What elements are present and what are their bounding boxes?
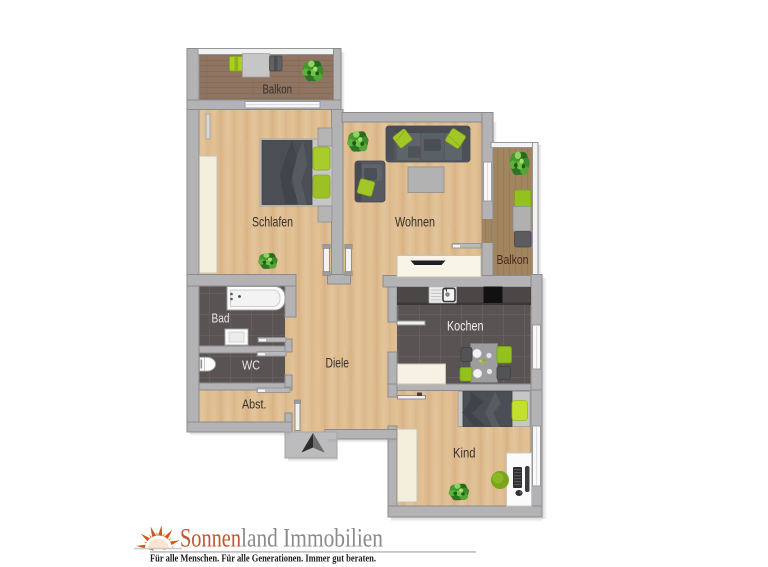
svg-text:Wohnen: Wohnen [395,215,435,230]
svg-text:Schlafen: Schlafen [252,215,293,230]
svg-text:WC: WC [242,359,260,373]
svg-text:Für alle Menschen. Für alle Ge: Für alle Menschen. Für alle Generationen… [150,553,376,565]
svg-text:Kind: Kind [453,446,476,461]
svg-text:land Immobilien: land Immobilien [241,524,383,553]
svg-text:Diele: Diele [326,356,350,371]
svg-text:Bad: Bad [212,312,230,326]
svg-text:Abst.: Abst. [242,398,267,412]
svg-text:Balkon: Balkon [263,83,293,97]
svg-text:Sonnen: Sonnen [180,524,241,553]
svg-text:Kochen: Kochen [447,319,484,334]
svg-text:Balkon: Balkon [497,252,529,267]
